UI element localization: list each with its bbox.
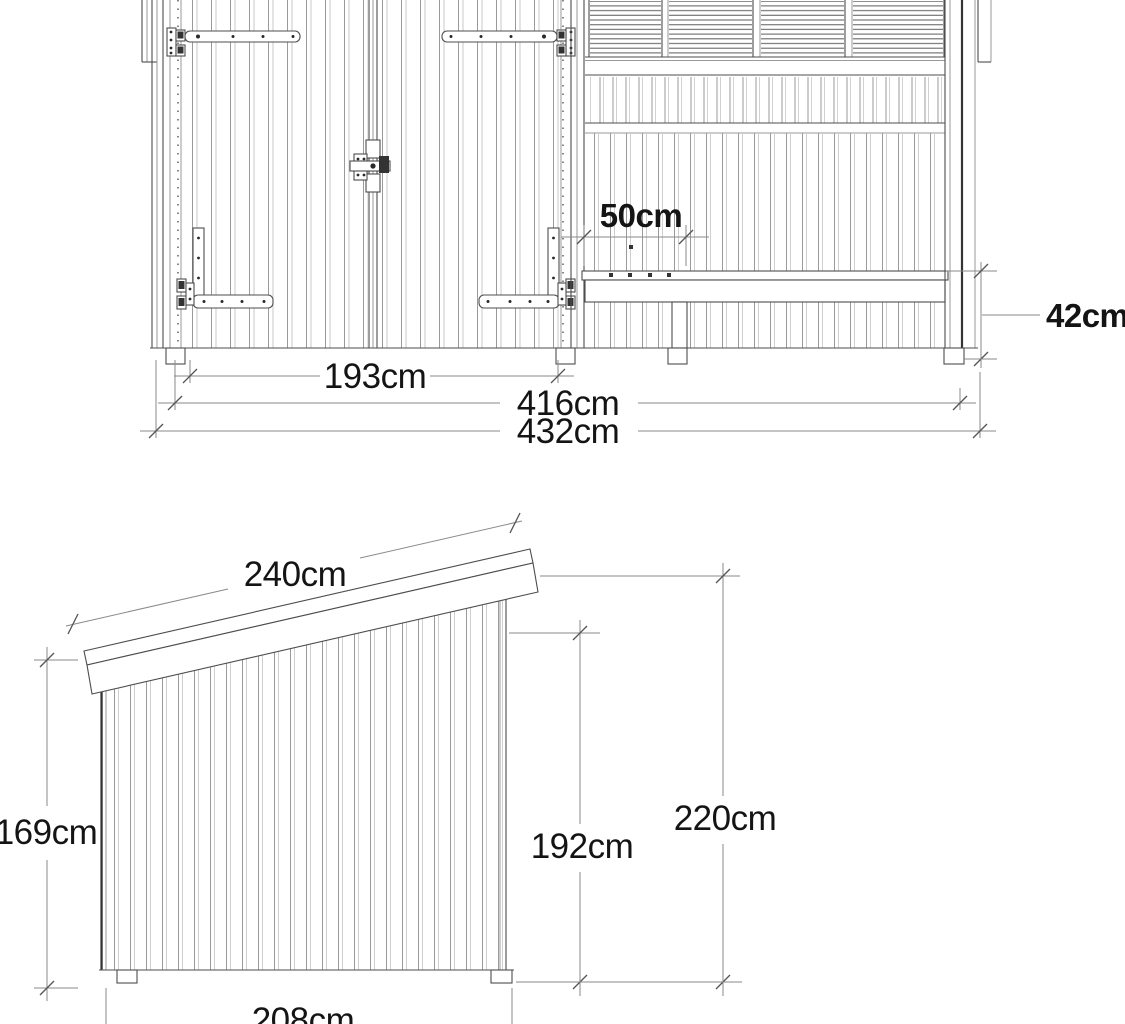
left-corner-trim xyxy=(142,0,170,348)
right-corner-post xyxy=(945,0,991,348)
dim-label-door-width: 193cm xyxy=(322,359,428,396)
dim-wall-height xyxy=(509,620,600,996)
side-feet xyxy=(117,970,512,983)
dim-total-height xyxy=(516,563,742,996)
technical-drawing-page: 50cm 42cm 193cm 416cm 432cm 240cm 169cm … xyxy=(0,0,1125,1024)
dim-label-depth: 208cm xyxy=(250,1003,356,1024)
slat-wall-front xyxy=(589,133,944,348)
bench-leg xyxy=(672,302,687,348)
base-and-feet xyxy=(150,348,978,364)
shed-elevation-drawing xyxy=(0,0,1125,1024)
railing-band xyxy=(585,77,945,133)
double-doors xyxy=(167,0,575,348)
dim-label-total-width: 432cm xyxy=(515,414,621,451)
dim-label-wall-height: 192cm xyxy=(529,829,635,866)
dim-label-front-height: 169cm xyxy=(0,815,98,852)
louver-band xyxy=(585,0,945,75)
front-elevation xyxy=(140,0,1040,438)
dim-label-bench-depth: 50cm xyxy=(598,199,684,234)
dim-label-total-height: 220cm xyxy=(672,801,778,838)
dim-label-roof-length: 240cm xyxy=(242,557,348,594)
dim-label-bench-height: 42cm xyxy=(1046,299,1125,334)
side-elevation xyxy=(34,513,742,1024)
